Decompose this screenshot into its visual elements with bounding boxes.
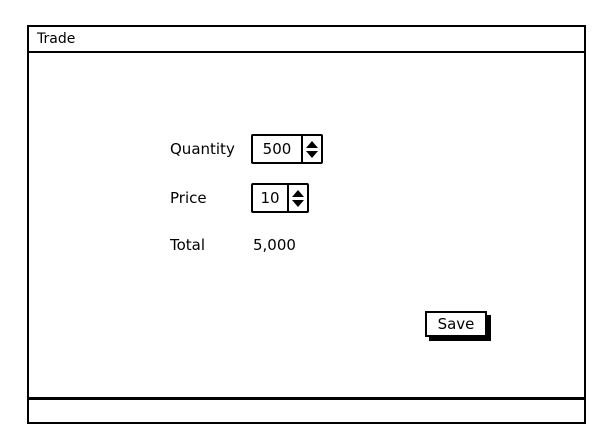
quantity-decrement-button[interactable] [303, 149, 321, 158]
quantity-increment-button[interactable] [303, 140, 321, 149]
quantity-stepper [251, 134, 323, 164]
quantity-row: Quantity [170, 134, 323, 164]
price-row: Price [170, 183, 309, 213]
price-decrement-button[interactable] [289, 198, 307, 207]
up-triangle-icon [292, 190, 304, 197]
quantity-label: Quantity [170, 140, 251, 158]
trade-window: Trade Quantity Price [27, 25, 586, 424]
down-triangle-icon [292, 200, 304, 207]
up-triangle-icon [306, 141, 318, 148]
quantity-spin-buttons [301, 136, 321, 162]
window-content: Quantity Price Total 5,000 [29, 53, 584, 397]
total-row: Total 5,000 [170, 230, 296, 260]
total-value: 5,000 [251, 236, 296, 254]
price-input[interactable] [253, 185, 287, 211]
down-triangle-icon [306, 151, 318, 158]
total-label: Total [170, 236, 251, 254]
save-button[interactable]: Save [425, 311, 487, 337]
window-statusbar [29, 397, 584, 422]
price-label: Price [170, 189, 251, 207]
price-stepper [251, 183, 309, 213]
window-title: Trade [37, 31, 75, 47]
price-spin-buttons [287, 185, 307, 211]
quantity-input[interactable] [253, 136, 301, 162]
price-increment-button[interactable] [289, 189, 307, 198]
window-titlebar: Trade [29, 27, 584, 53]
